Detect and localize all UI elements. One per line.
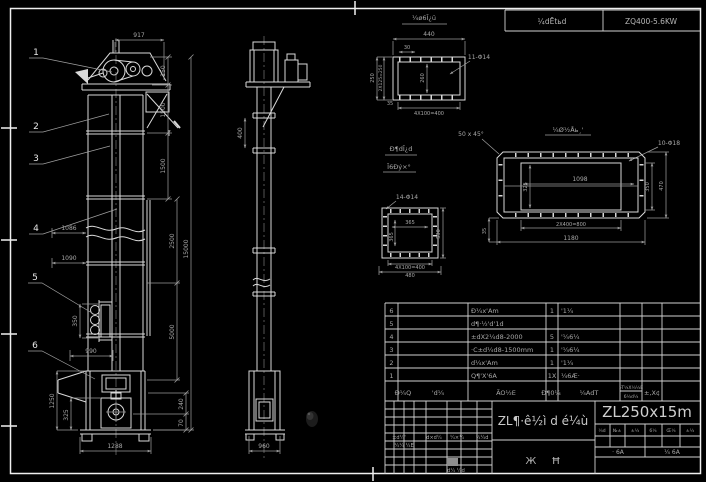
detail-b-holes: 10-Φ18 <box>658 140 680 147</box>
bom-header-remark: ±,X¢ <box>644 389 660 397</box>
dim-door-350: 350 <box>72 315 79 327</box>
dim-400: 400 <box>237 127 244 139</box>
dim-2500: 2500 <box>169 233 176 248</box>
dim-240: 240 <box>178 398 185 410</box>
bom-row-name: ±dX2¼d8-2000 <box>471 333 523 341</box>
bom-row-material: '1¼ <box>561 307 574 315</box>
dim-260: 260 <box>420 73 426 83</box>
dim-917: 917 <box>133 32 145 39</box>
sheet-frame <box>1 1 701 481</box>
dim-5000: 5000 <box>169 324 176 339</box>
dim-4x100: 4X100=400 <box>414 111 444 117</box>
bom-header-material: ¼AdT <box>580 389 599 397</box>
dim-960: 960 <box>258 443 270 450</box>
bom-row-no: 6 <box>389 307 393 315</box>
cad-drawing-canvas[interactable]: ¼dĒtьd ZQ400-5.6KW I 1 2 <box>0 0 706 482</box>
dim-30: 30 <box>404 45 410 51</box>
title-block: ±d¼' d×d¼ ¼×¼ ¼¼d ¼¼ ¼E d¼ ¼d ZL¶·ê½ì d … <box>385 401 700 474</box>
bom-row-name: Q¶'X'6A <box>471 372 497 380</box>
dim-325b: 325 <box>523 182 529 192</box>
mini-header-4: 6¼ <box>649 428 657 434</box>
dim-1288: 1288 <box>107 443 122 450</box>
bom-row-name: d¶·½'d'1d <box>471 320 504 328</box>
dim-1500-lower: 1500 <box>160 158 167 173</box>
bom-header-qty: Đ¶0¼ <box>541 389 561 397</box>
bom-header-code: 'd¼ <box>432 389 445 397</box>
bom-row-name: Đ¼x'Am <box>471 307 499 315</box>
bom-row-qty: 5 <box>550 333 554 341</box>
dim-250: 250 <box>370 73 376 83</box>
side-elevation-view: 400 960 <box>237 36 310 458</box>
highlighted-cell <box>447 458 458 466</box>
dim-2x400: 2X400=800 <box>556 222 586 228</box>
bom-row-qty: 1X <box>548 372 557 380</box>
dim-440: 440 <box>423 31 435 38</box>
bom-row-no: 4 <box>389 333 393 341</box>
bom-row-material: '¼6¼ <box>561 333 580 341</box>
detail-c-holes: 14-Φ14 <box>396 194 418 201</box>
sheet-count-left: · 6A <box>612 449 625 456</box>
rev-row2-label: ¼¼ ¼E <box>394 443 413 449</box>
dim-c-width: 365 <box>405 220 415 226</box>
callout-3: 3 <box>33 154 39 164</box>
dim-1090: 1090 <box>61 255 76 262</box>
dim-35b: 35 <box>482 228 488 234</box>
dim-1500-upper: 1500 <box>160 102 167 117</box>
mini-header-2: №± <box>613 428 622 434</box>
bom-row-no: 2 <box>389 359 393 367</box>
callout-5: 5 <box>32 273 38 283</box>
plate-right-label: ZQ400-5.6KW <box>625 17 678 26</box>
detail-view-b: ¼Ø½Åь¸' 50 x 45° 10-Φ18 1098 325 350 470… <box>458 125 680 245</box>
bom-row-qty: 1 <box>550 359 554 367</box>
bom-row-qty: 1 <box>550 346 554 354</box>
dim-c-b1: 4X100=400 <box>395 265 425 271</box>
bom-header-weight-total: 6¼d¼ <box>624 394 639 400</box>
dim-c-height: 365 <box>389 232 395 242</box>
bom-row-no: 1 <box>389 372 393 380</box>
bom-row-material: ¼6Æ· <box>561 372 580 380</box>
dim-150: 150 <box>160 65 167 77</box>
bom-header-weight-unit: »T¼X¼½E <box>619 384 643 391</box>
bom-row-no: 5 <box>389 320 393 328</box>
callout-1: 1 <box>33 48 39 58</box>
bom-table: 6 Đ¼x'Am 1 '1¼ 5 d¶·½'d'1d 4 ±dX2¼d8-200… <box>385 303 700 474</box>
rev-bottom-label: d¼ ¼d <box>447 468 465 474</box>
dim-470: 470 <box>659 181 665 191</box>
product-title: ZL¶·ê½ì d é¼ù <box>498 414 589 428</box>
dim-1086: 1086 <box>61 225 76 232</box>
rev-header-3: ¼×¼ <box>450 435 464 441</box>
bom-row-name: d¼x'Am <box>471 359 498 367</box>
sheet-count-right: ¼ 6A <box>664 449 681 456</box>
cursor-artifact <box>306 411 318 427</box>
dim-325: 325 <box>63 409 70 421</box>
detail-c-title-1: Đ¶dĪ¿d <box>390 144 413 153</box>
plate-left-label: ¼dĒtьd <box>538 17 567 26</box>
mini-header-1: ¼d <box>598 428 605 434</box>
dim-c-b2: 480 <box>405 273 415 279</box>
detail-a-title: ¼ø6Ī¿ü <box>412 13 436 22</box>
drawing-type-label: Ж Ħ <box>525 456 566 467</box>
dim-1180: 1180 <box>563 235 578 242</box>
drawing-number: ZL250x15m <box>602 403 692 421</box>
callout-2: 2 <box>33 122 39 132</box>
bom-header-no: Đ¼Q <box>395 389 411 397</box>
rev-header-1: ±d¼' <box>392 435 406 441</box>
dim-1098: 1098 <box>572 176 587 183</box>
detail-a-holes: 11-Φ14 <box>468 54 490 61</box>
rev-header-4: ¼¼d <box>476 435 489 441</box>
rev-header-2: d×d¼ <box>426 435 442 441</box>
bom-row-no: 3 <box>389 346 393 354</box>
detail-b-title: ¼Ø½Åь¸' <box>552 125 583 134</box>
dim-35a: 35 <box>387 101 393 107</box>
front-elevation-view: I 1 2 3 4 5 6 917 <box>28 32 194 458</box>
bom-row-name: ·C±d¼d8-1500mm <box>471 346 533 354</box>
dim-70: 70 <box>178 419 185 427</box>
drive-spec-plate: ¼dĒtьd ZQ400-5.6KW <box>505 10 700 31</box>
mini-header-6: ±¼ <box>686 428 695 434</box>
detail-view-c: Đ¶dĪ¿d Ī6Đý×° 14-Φ14 365 365 530 4X100=4… <box>379 144 446 279</box>
callout-4: 4 <box>33 224 39 234</box>
bom-header-name: ÃO½E <box>496 388 516 397</box>
cad-workspace: ¼dĒtьd ZQ400-5.6KW I 1 2 <box>0 0 706 482</box>
detail-b-chamfer-note: 50 x 45° <box>458 131 484 138</box>
detail-view-a: ¼ø6Ī¿ü 11-Φ14 440 30 260 250 2X125=250 3… <box>370 13 490 117</box>
dim-990: 990 <box>85 348 97 355</box>
dim-1250: 1250 <box>49 393 56 408</box>
dim-2x125: 2X125=250 <box>378 64 384 91</box>
tension-arm-anchor <box>75 69 88 84</box>
dim-c-right: 530 <box>436 229 442 239</box>
bom-row-qty: 1 <box>550 307 554 315</box>
mini-header-5: Œ¼ <box>666 428 676 434</box>
bom-row-material: '1¼ <box>561 359 574 367</box>
dim-15000: 15000 <box>183 239 190 258</box>
mini-header-3: ±¼ <box>631 428 640 434</box>
callout-6: 6 <box>32 341 38 351</box>
detail-c-title-2: Ī6Đý×° <box>387 162 411 171</box>
bom-row-material: '¼6¼ <box>561 346 580 354</box>
dim-350b: 350 <box>645 182 651 192</box>
